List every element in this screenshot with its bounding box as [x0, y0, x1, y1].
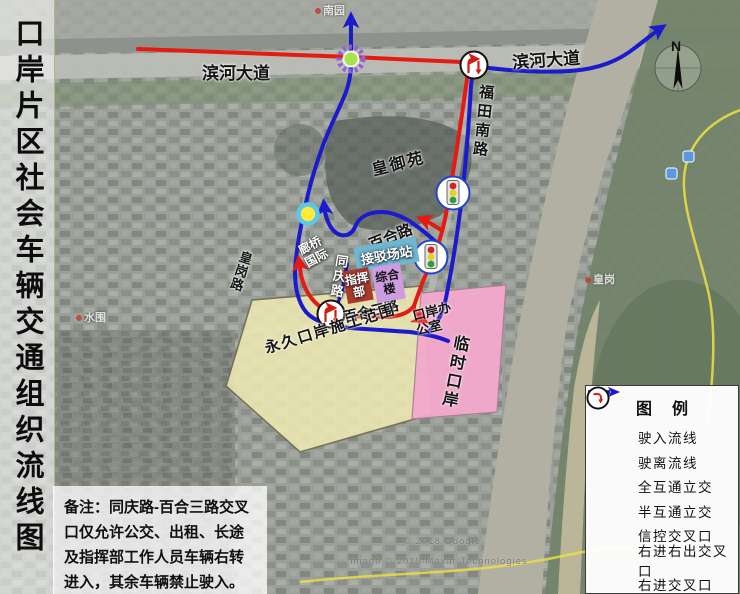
poi-dot-icon — [315, 8, 321, 14]
road-label-binhe-east: 滨河大道 — [511, 44, 581, 74]
traffic-flow-map: 滨河大道 滨河大道 福田南路 皇御苑 百合路 同庆路 皇岗路 百合三路 廊桥国际… — [0, 0, 740, 594]
basemap-label-shuiwei: 水围 — [76, 309, 106, 325]
command-post-label: 指挥部 — [343, 270, 373, 300]
complex-building-box: 综合楼 — [371, 263, 406, 303]
road-label-binhe-west: 滨河大道 — [202, 59, 270, 84]
right-in-right-out-icon — [461, 52, 488, 79]
watermark-maxar: Image © 2019 Maxar Technologies — [350, 556, 528, 567]
legend-item-entry-flow: 驶入流线 — [598, 425, 738, 450]
poi-dot-icon — [585, 277, 591, 283]
basemap-label-huanggang: 皇岗 — [585, 271, 615, 287]
half-interchange-icon — [299, 205, 318, 224]
complex-building-label: 综合楼 — [372, 268, 405, 299]
signal-intersection-icon — [437, 177, 470, 210]
compass-north-label: N — [671, 38, 681, 54]
legend-item-right-in-right-out: 右进右出交叉口 — [598, 548, 738, 573]
signal-intersection-icon — [415, 241, 448, 274]
poi-dot-icon — [76, 315, 82, 321]
page-title-strip: 口岸片区社会车辆交通组织流线图 — [0, 0, 55, 594]
basemap-label-nanyuan: 南园 — [315, 2, 345, 18]
legend-item-half-interchange: 半互通立交 — [598, 499, 738, 524]
page-title: 口岸片区社会车辆交通组织流线图 — [0, 18, 54, 594]
legend-item-exit-flow: 驶离流线 — [598, 450, 738, 475]
note-text: 备注：同庆路-百合三路交叉口仅允许公交、出租、长途及指挥部工作人员车辆右转进入，… — [64, 499, 249, 591]
note-box: 备注：同庆路-百合三路交叉口仅允许公交、出租、长途及指挥部工作人员车辆右转进入，… — [53, 486, 267, 594]
legend-item-full-interchange: 全互通立交 — [598, 474, 738, 499]
command-post-box: 指挥部 — [342, 267, 373, 304]
legend-panel: 图 例 驶入流线 驶离流线 全互通立交 半互通立交 信控交叉口 右进右 — [585, 385, 739, 594]
watermark-google: © 2018 Google — [404, 536, 481, 547]
legend-title: 图 例 — [636, 395, 738, 419]
